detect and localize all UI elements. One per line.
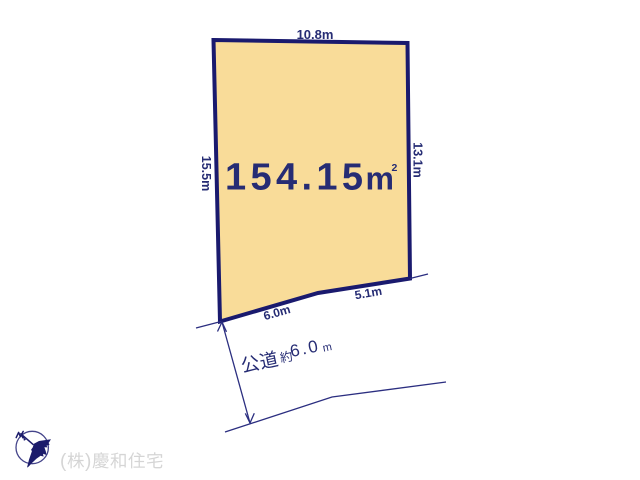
svg-text:15.5m: 15.5m	[199, 156, 213, 191]
svg-text:13.1m: 13.1m	[411, 142, 425, 177]
svg-text:10.8m: 10.8m	[297, 27, 334, 42]
svg-text:): )	[85, 451, 91, 472]
svg-text:6.0: 6.0	[288, 336, 322, 361]
svg-text:m: m	[322, 341, 333, 355]
svg-text:154.15m2: 154.15m2	[225, 157, 398, 199]
svg-text:(: (	[60, 451, 67, 472]
